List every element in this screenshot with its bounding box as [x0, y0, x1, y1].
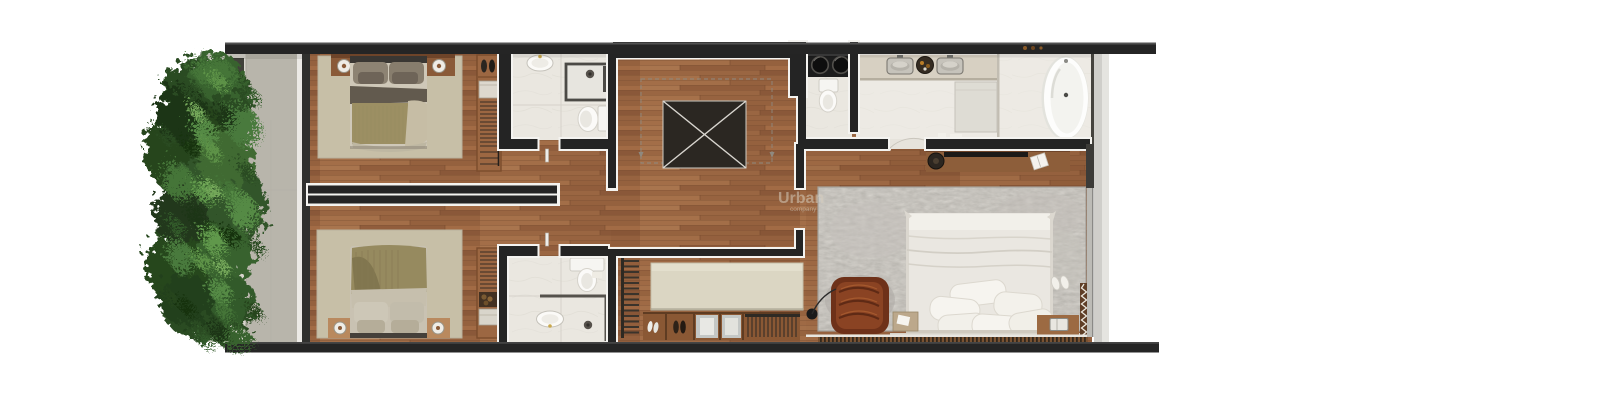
svg-text:company: company	[790, 206, 817, 213]
svg-text:Urban: Urban	[778, 190, 824, 207]
